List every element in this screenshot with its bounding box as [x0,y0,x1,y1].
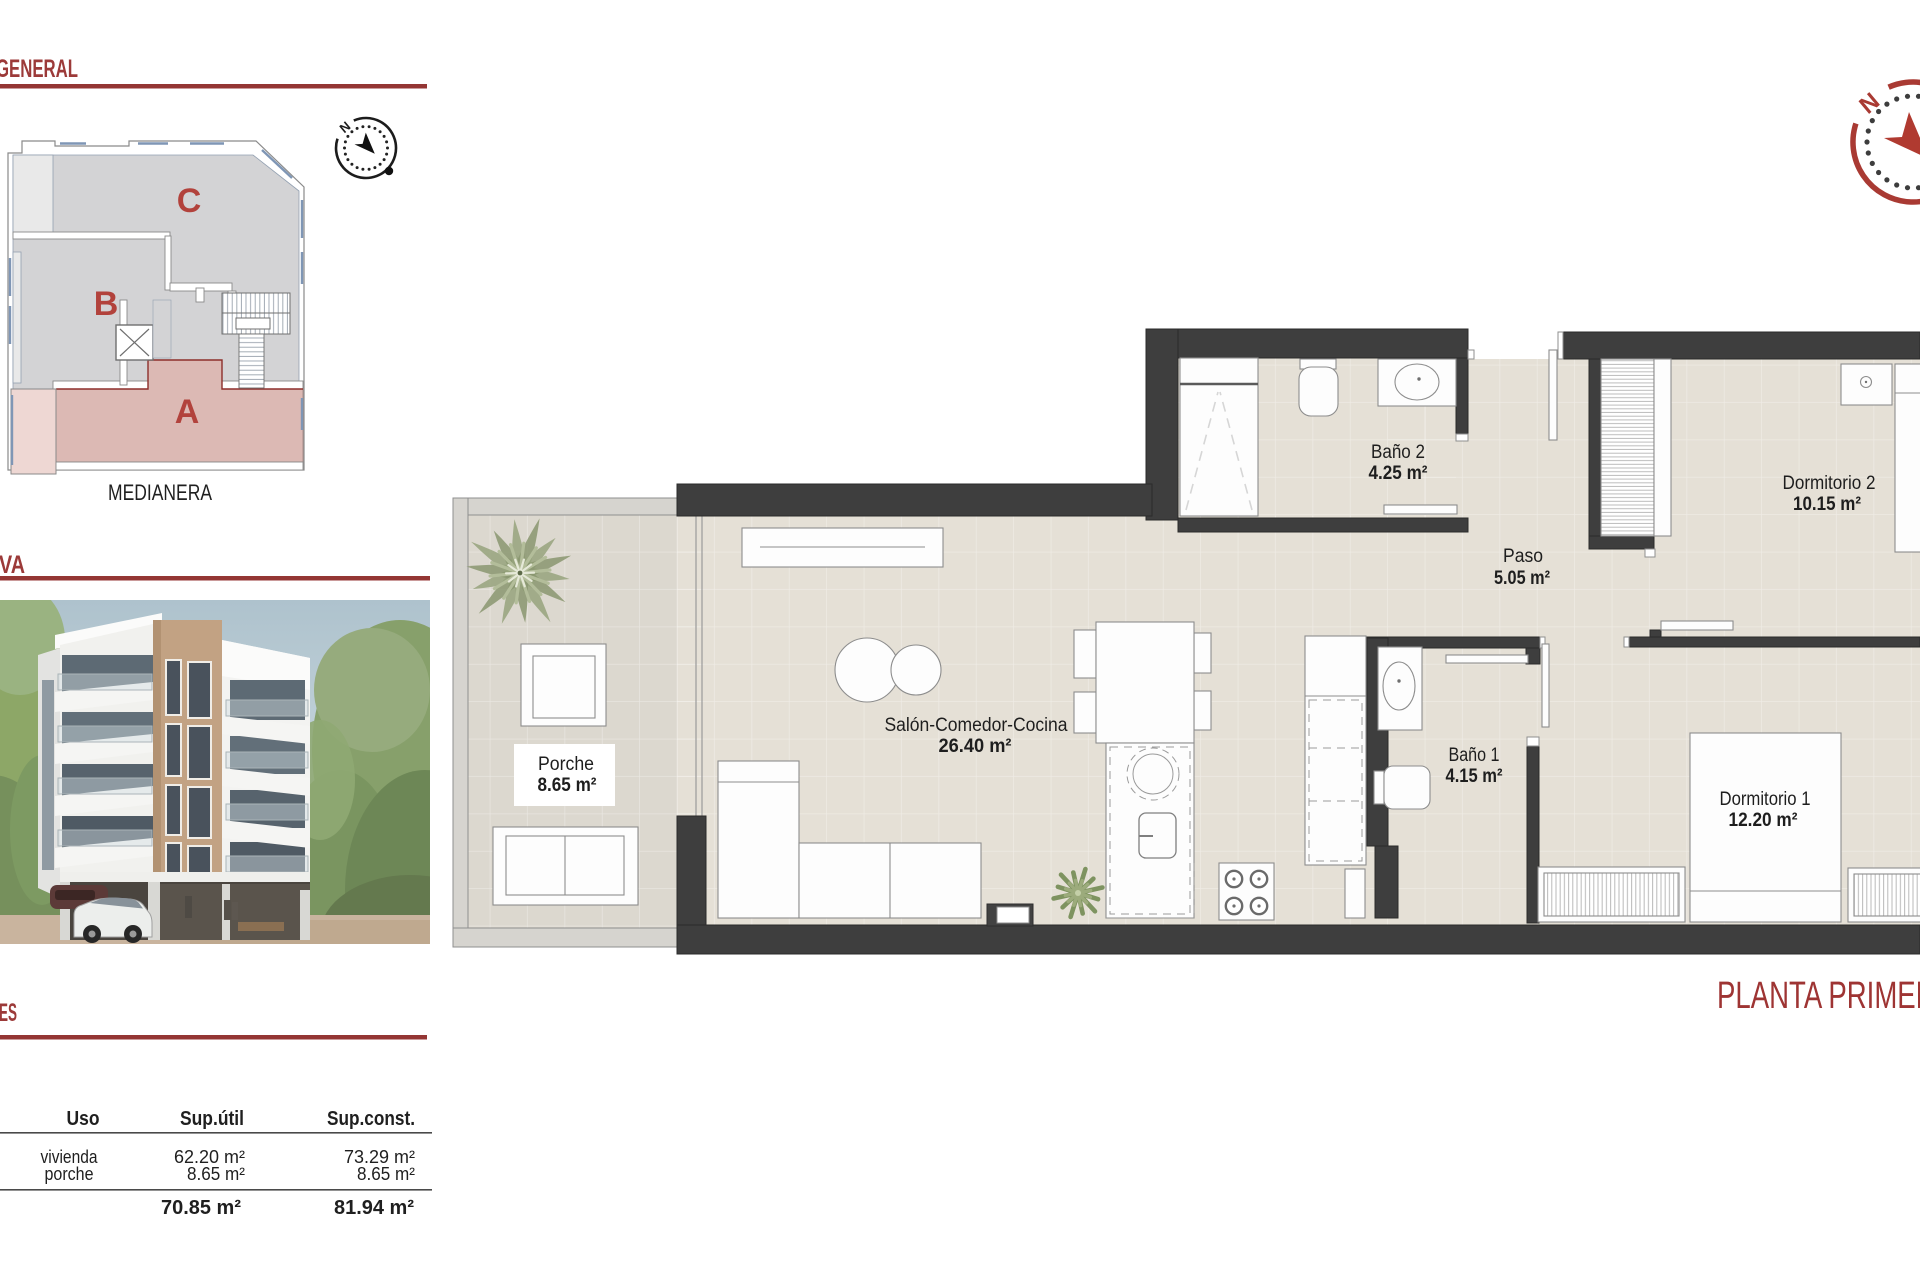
svg-text:ES: ES [0,999,17,1027]
svg-text:Paso: Paso [1503,546,1543,567]
svg-text:Sup.const.: Sup.const. [327,1108,415,1130]
svg-text:porche: porche [45,1164,94,1184]
svg-text:8.65 m²: 8.65 m² [187,1164,245,1184]
svg-text:B: B [94,285,119,323]
svg-text:8.65 m²: 8.65 m² [538,775,597,796]
svg-text:N: N [1854,88,1885,120]
svg-text:C: C [177,182,202,220]
svg-text:70.85 m²: 70.85 m² [161,1197,241,1219]
svg-text:Dormitorio 2: Dormitorio 2 [1783,473,1876,494]
svg-text:10.15 m²: 10.15 m² [1793,494,1861,515]
svg-text:Salón-Comedor-Cocina: Salón-Comedor-Cocina [885,715,1068,736]
svg-text:26.40 m²: 26.40 m² [939,736,1012,757]
svg-text:GENERAL: GENERAL [0,55,78,83]
svg-text:A: A [175,393,200,431]
svg-text:5.05 m²: 5.05 m² [1494,568,1550,589]
svg-text:Dormitorio 1: Dormitorio 1 [1720,789,1811,810]
svg-text:12.20 m²: 12.20 m² [1729,810,1798,831]
svg-text:4.25 m²: 4.25 m² [1369,463,1428,484]
svg-text:N: N [337,118,354,136]
svg-text:4.15 m²: 4.15 m² [1446,766,1503,787]
svg-text:Baño 1: Baño 1 [1449,745,1500,766]
svg-text:MEDIANERA: MEDIANERA [108,480,212,505]
svg-text:Sup.útil: Sup.útil [180,1108,244,1130]
svg-text:Baño 2: Baño 2 [1371,442,1425,463]
svg-text:Uso: Uso [67,1108,100,1130]
svg-text:Porche: Porche [538,754,594,775]
svg-text:PLANTA PRIMERA: PLANTA PRIMERA [1717,975,1920,1017]
svg-text:8.65 m²: 8.65 m² [357,1164,415,1184]
svg-text:81.94 m²: 81.94 m² [334,1197,414,1219]
svg-text:VA: VA [0,551,25,579]
